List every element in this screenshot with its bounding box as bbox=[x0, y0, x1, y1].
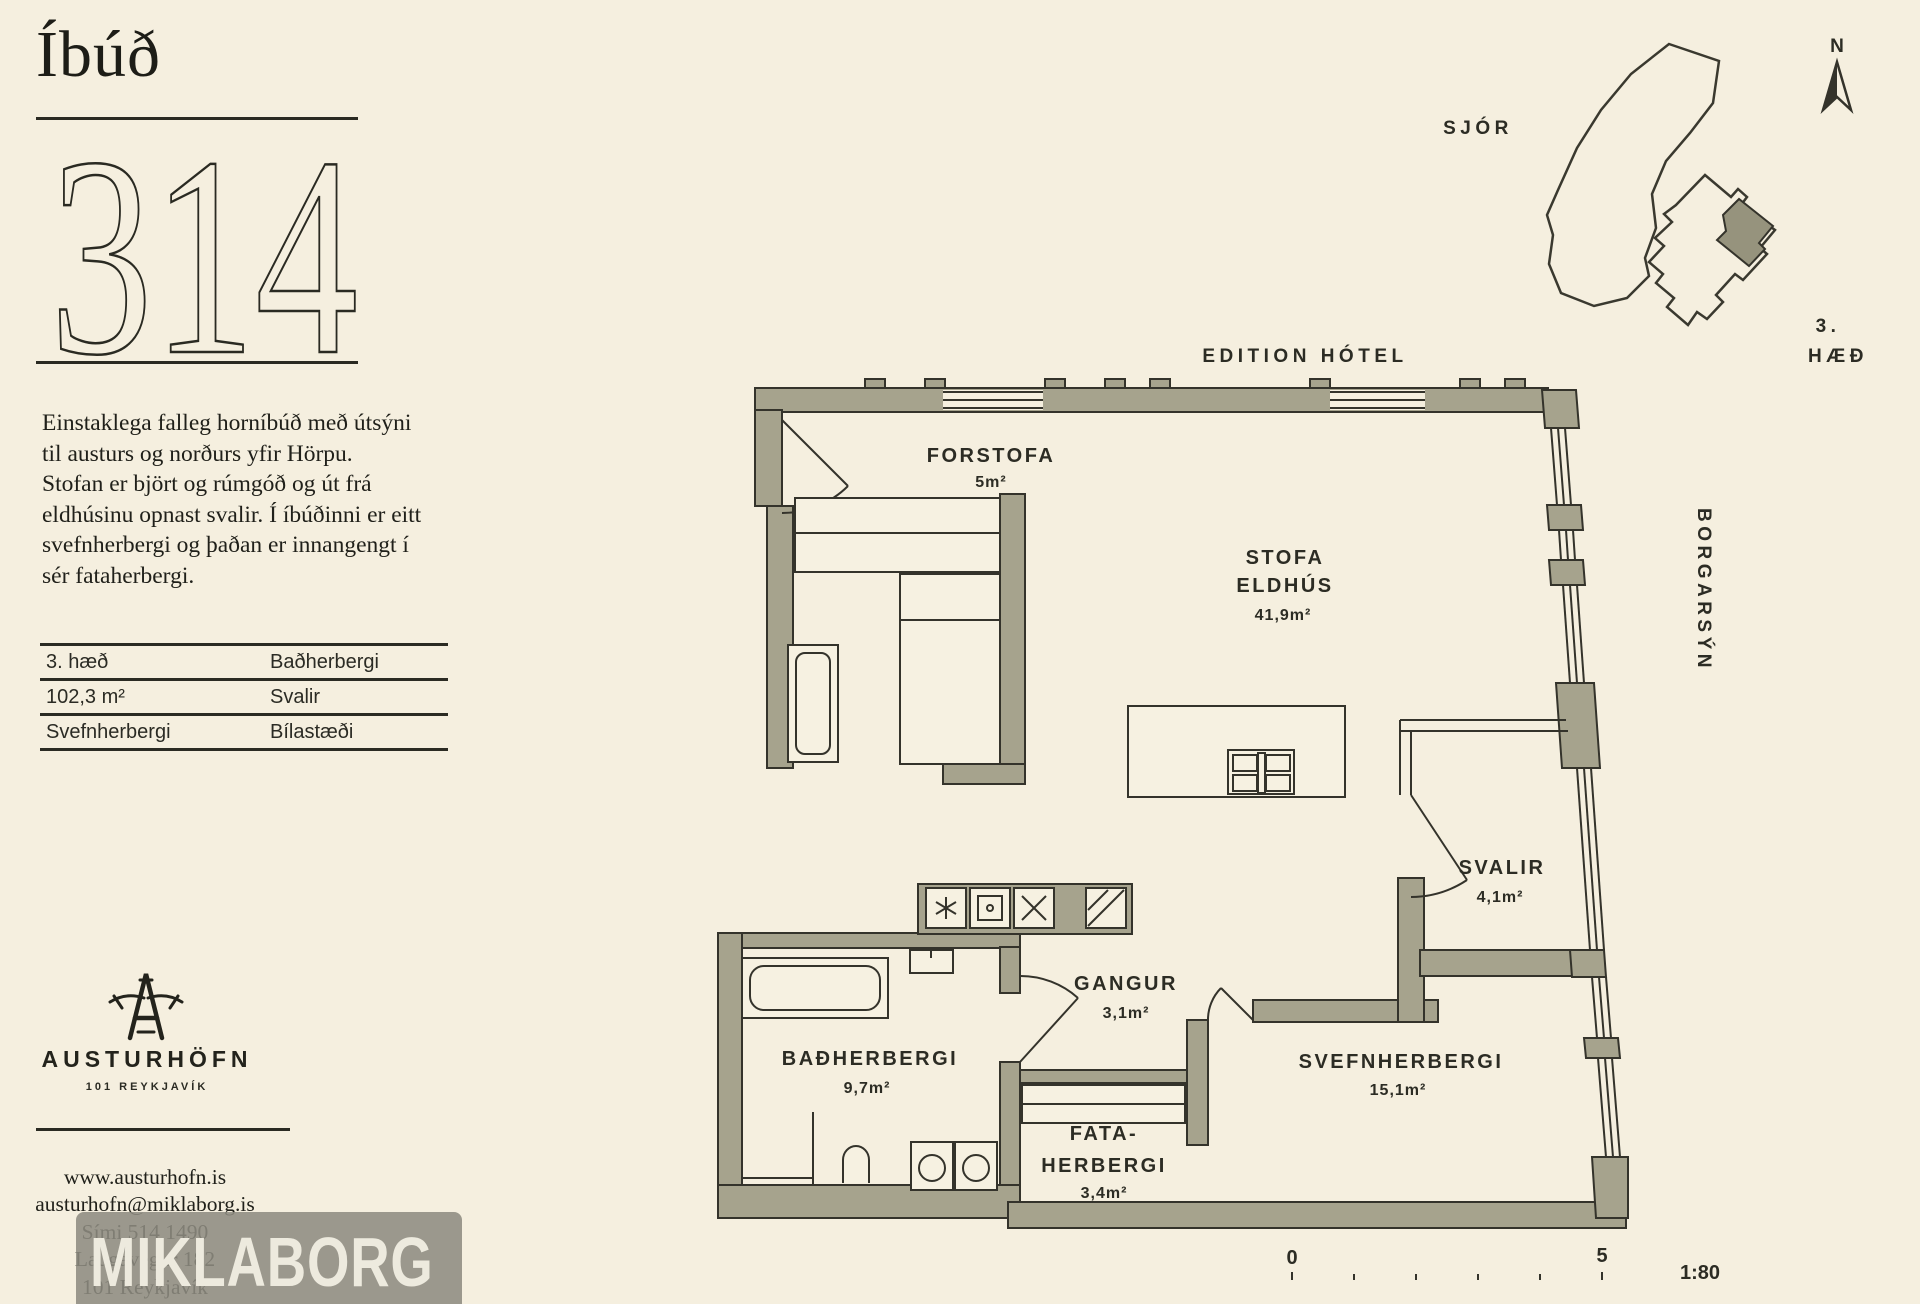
kitchen-island bbox=[1128, 706, 1345, 797]
svg-text:N: N bbox=[1830, 36, 1844, 57]
floor-plan: FORSTOFA 5m² STOFA ELDHÚS 41,9m² SVALIR … bbox=[0, 0, 1920, 1280]
agency-name: MIKLABORG bbox=[90, 1222, 380, 1302]
site-building-west bbox=[1547, 44, 1719, 306]
bathtub bbox=[742, 958, 888, 1018]
wardrobe bbox=[1022, 1085, 1185, 1123]
room-area-gangur: 3,1m² bbox=[1103, 1005, 1150, 1022]
room-label-gangur: GANGUR bbox=[1074, 973, 1178, 995]
floorplan-flyer-page: { "page": { "background": "#f5efdf", "in… bbox=[0, 0, 1920, 1280]
duct-column bbox=[788, 645, 838, 762]
scale-ratio: 1:80 bbox=[1680, 1262, 1720, 1280]
room-area-badherbergi: 9,7m² bbox=[844, 1080, 891, 1097]
hall-closet bbox=[795, 498, 1000, 572]
floor-label-text: HÆÐ bbox=[1808, 346, 1868, 367]
room-area-svalir: 4,1m² bbox=[1477, 889, 1524, 906]
north-arrow-icon: N bbox=[1823, 36, 1851, 110]
site-plan bbox=[1547, 44, 1775, 325]
room-label-svefnherbergi: SVEFNHERBERGI bbox=[1299, 1051, 1504, 1073]
toilet bbox=[843, 1146, 869, 1183]
floor-label-number: 3. bbox=[1816, 316, 1841, 337]
room-label-fata2: HERBERGI bbox=[1041, 1155, 1167, 1177]
kitchen-appliances bbox=[926, 888, 1126, 928]
room-label-badherbergi: BAÐHERBERGI bbox=[782, 1048, 958, 1070]
fixtures bbox=[742, 498, 1345, 1190]
room-area-svefnherbergi: 15,1m² bbox=[1370, 1082, 1427, 1099]
oven-icon bbox=[978, 896, 1002, 920]
contact-website: www.austurhofn.is bbox=[0, 1164, 290, 1191]
room-label-stofa: STOFA bbox=[1246, 547, 1325, 569]
room-label-fata: FATA- bbox=[1070, 1123, 1138, 1145]
scale-start: 0 bbox=[1286, 1247, 1297, 1269]
sea-label: SJÓR bbox=[1443, 117, 1513, 139]
bathroom-sinks bbox=[911, 1142, 997, 1190]
scale-end: 5 bbox=[1596, 1245, 1607, 1267]
room-label-eldhus: ELDHÚS bbox=[1236, 573, 1333, 597]
room-label-svalir: SVALIR bbox=[1459, 857, 1546, 879]
room-area-stofa: 41,9m² bbox=[1255, 607, 1312, 624]
hotel-label: EDITION HÓTEL bbox=[1202, 345, 1407, 367]
room-area-fata: 3,4m² bbox=[1081, 1185, 1128, 1202]
room-label-forstofa: FORSTOFA bbox=[927, 445, 1056, 467]
agency-watermark: MIKLABORG bbox=[76, 1212, 462, 1304]
street-label: BORGARSÝN bbox=[1693, 508, 1715, 672]
room-area-forstofa: 5m² bbox=[975, 474, 1006, 491]
scale-bar bbox=[1292, 1272, 1602, 1280]
